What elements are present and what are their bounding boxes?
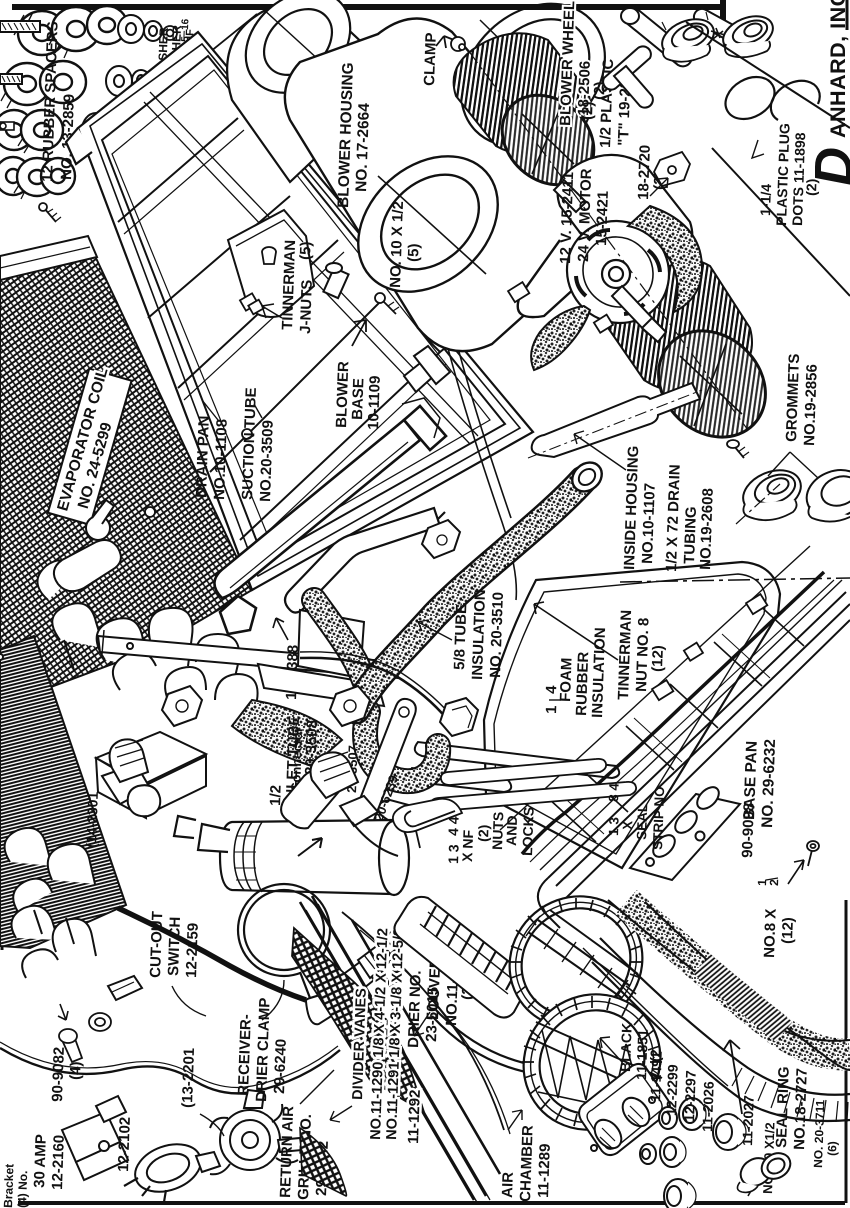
svg-text:NO.20-3509: NO.20-3509 (257, 420, 277, 502)
svg-text:BLACK: BLACK (617, 1023, 635, 1073)
svg-text:GROMMETS: GROMMETS (783, 353, 803, 442)
svg-text:90-9098: 90-9098 (739, 803, 758, 859)
svg-text:NO.18-2727: NO.18-2727 (791, 1068, 811, 1150)
svg-text:(2): (2) (579, 101, 597, 120)
svg-text:5/8 TUBE: 5/8 TUBE (451, 604, 470, 670)
svg-text:(4): (4) (67, 1061, 85, 1080)
svg-text:AND: AND (503, 815, 520, 846)
svg-text:(4) No.: (4) No. (15, 1170, 30, 1208)
svg-text:10-1109: 10-1109 (365, 375, 384, 430)
svg-text:12-2299: 12-2299 (663, 1064, 681, 1116)
svg-text:NO. 10 X 1/2: NO. 10 X 1/2 (387, 201, 407, 288)
svg-text:12-2297: 12-2297 (681, 1070, 699, 1122)
svg-text:TINNERMAN: TINNERMAN (615, 610, 635, 701)
svg-text:NO.19-2856: NO.19-2856 (801, 364, 821, 446)
svg-text:(12): (12) (779, 917, 797, 944)
svg-text:16: 16 (180, 18, 191, 30)
svg-text:TINNERMAN: TINNERMAN (279, 240, 299, 331)
svg-text:15-2421: 15-2421 (593, 191, 612, 247)
svg-text:DRAIN PAN: DRAIN PAN (193, 415, 213, 498)
svg-text:SEAL RING: SEAL RING (773, 1066, 793, 1148)
svg-text:Bracket: Bracket (1, 1164, 17, 1208)
svg-text:NO.19-2608: NO.19-2608 (697, 488, 717, 570)
svg-text:1: 1 (543, 705, 560, 714)
svg-text:(5): (5) (405, 243, 423, 262)
svg-text:11-1292: 11-1292 (405, 1089, 424, 1144)
svg-text:NO.8 X: NO.8 X (761, 908, 780, 958)
svg-text:24 V. MOTOR: 24 V. MOTOR (575, 168, 595, 262)
svg-text:29-6240: 29-6240 (271, 1039, 290, 1095)
svg-text:12-2159: 12-2159 (183, 923, 202, 979)
svg-text:X NF: X NF (459, 829, 476, 862)
svg-text:(13-2201: (13-2201 (179, 1048, 198, 1109)
svg-text:X: X (620, 821, 635, 831)
svg-text:STRIP NO: STRIP NO (650, 786, 667, 850)
svg-text:CHAMBER: CHAMBER (517, 1125, 537, 1202)
svg-text:J-NUTS: J-NUTS (297, 279, 316, 334)
svg-text:SWITCH: SWITCH (165, 916, 184, 976)
svg-text:8 4: 8 4 (606, 782, 622, 802)
svg-text:CLAMP: CLAMP (421, 32, 440, 86)
svg-text:12-2160: 12-2160 (49, 1135, 68, 1191)
svg-text:NO. 29-6232: NO. 29-6232 (759, 739, 779, 828)
svg-text:(14-2301: (14-2301 (83, 791, 101, 848)
svg-text:(6): (6) (825, 1141, 840, 1156)
svg-text:RECEIVER-: RECEIVER- (235, 1014, 255, 1096)
svg-text:NO.10-1107: NO.10-1107 (639, 483, 659, 564)
svg-text:RETURN AIR: RETURN AIR (277, 1105, 297, 1198)
svg-text:ANHARD, INC.: ANHARD, INC. (826, 0, 850, 138)
svg-text:CUT-OUT: CUT-OUT (147, 911, 166, 978)
svg-text:12-2102: 12-2102 (115, 1117, 134, 1173)
svg-text:30 AMP: 30 AMP (31, 1134, 50, 1188)
svg-text:INSULATION: INSULATION (589, 627, 609, 718)
svg-text:NO. 17-2664: NO. 17-2664 (353, 102, 373, 192)
svg-text:(12): (12) (649, 645, 667, 672)
svg-text:INSULATION: INSULATION (469, 589, 489, 680)
svg-text:11-1289: 11-1289 (535, 1143, 554, 1198)
svg-text:NO.10-1108: NO.10-1108 (211, 419, 231, 500)
svg-text:(2): (2) (803, 178, 820, 196)
svg-text:LOCKS: LOCKS (519, 807, 537, 857)
svg-text:11-2026: 11-2026 (699, 1081, 717, 1132)
svg-text:NO. 20-3510: NO. 20-3510 (487, 592, 507, 678)
svg-text:11-1491: 11-1491 (647, 1051, 665, 1102)
svg-text:(5): (5) (297, 241, 315, 260)
svg-text:AIR: AIR (499, 1172, 517, 1199)
svg-text:90-9082: 90-9082 (49, 1047, 68, 1103)
svg-text:SEAL: SEAL (634, 804, 650, 841)
